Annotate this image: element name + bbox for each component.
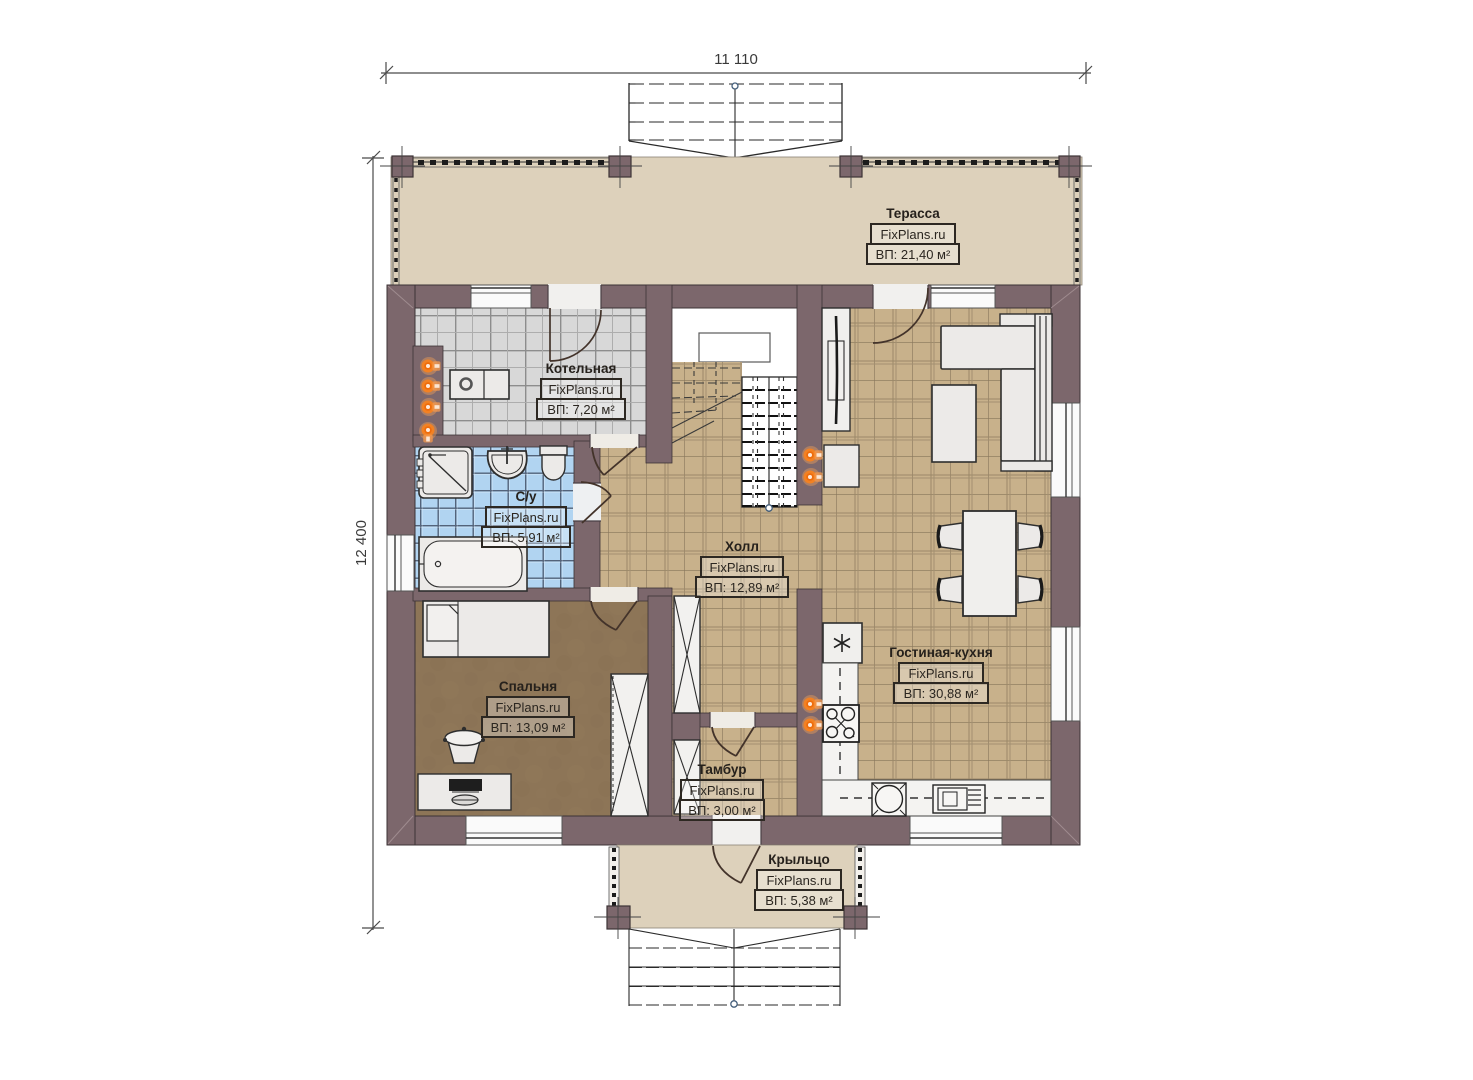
svg-text:ВП: 12,89 м²: ВП: 12,89 м² bbox=[705, 580, 780, 595]
svg-text:Холл: Холл bbox=[725, 539, 759, 554]
svg-text:FixPlans.ru: FixPlans.ru bbox=[689, 783, 754, 798]
svg-text:FixPlans.ru: FixPlans.ru bbox=[880, 227, 945, 242]
svg-text:FixPlans.ru: FixPlans.ru bbox=[548, 382, 613, 397]
svg-text:Гостиная-кухня: Гостиная-кухня bbox=[889, 645, 992, 660]
svg-text:Котельная: Котельная bbox=[546, 361, 617, 376]
svg-text:ВП: 30,88 м²: ВП: 30,88 м² bbox=[904, 686, 979, 701]
svg-text:ВП: 21,40 м²: ВП: 21,40 м² bbox=[876, 247, 951, 262]
svg-text:Спальня: Спальня bbox=[499, 679, 557, 694]
svg-text:ВП: 5,38 м²: ВП: 5,38 м² bbox=[765, 893, 833, 908]
svg-text:Терасса: Терасса bbox=[886, 206, 940, 221]
svg-text:FixPlans.ru: FixPlans.ru bbox=[908, 666, 973, 681]
svg-text:ВП: 7,20 м²: ВП: 7,20 м² bbox=[547, 402, 615, 417]
svg-text:11 110: 11 110 bbox=[714, 51, 758, 68]
svg-text:С/у: С/у bbox=[515, 489, 537, 504]
svg-text:FixPlans.ru: FixPlans.ru bbox=[766, 873, 831, 888]
svg-text:FixPlans.ru: FixPlans.ru bbox=[493, 510, 558, 525]
svg-text:Крыльцо: Крыльцо bbox=[768, 852, 829, 867]
svg-text:FixPlans.ru: FixPlans.ru bbox=[495, 700, 560, 715]
svg-text:Тамбур: Тамбур bbox=[698, 762, 747, 777]
svg-text:ВП: 5,91 м²: ВП: 5,91 м² bbox=[492, 530, 560, 545]
svg-text:ВП: 3,00 м²: ВП: 3,00 м² bbox=[688, 803, 756, 818]
svg-text:12 400: 12 400 bbox=[353, 520, 370, 566]
svg-text:ВП: 13,09 м²: ВП: 13,09 м² bbox=[491, 720, 566, 735]
svg-text:FixPlans.ru: FixPlans.ru bbox=[709, 560, 774, 575]
